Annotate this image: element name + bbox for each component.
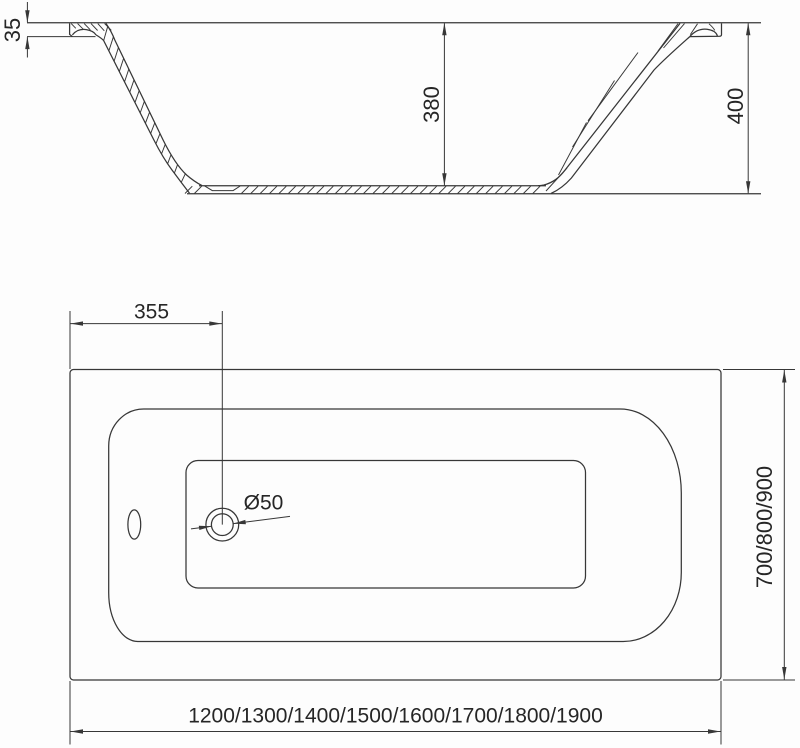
svg-text:35: 35	[0, 18, 25, 42]
svg-text:355: 355	[134, 301, 169, 324]
svg-text:1200/1300/1400/1500/1600/1700/: 1200/1300/1400/1500/1600/1700/1800/1900	[188, 705, 603, 728]
svg-text:380: 380	[419, 86, 444, 123]
svg-text:700/800/900: 700/800/900	[752, 466, 777, 588]
svg-text:Ø50: Ø50	[244, 492, 284, 515]
svg-text:400: 400	[723, 88, 748, 125]
